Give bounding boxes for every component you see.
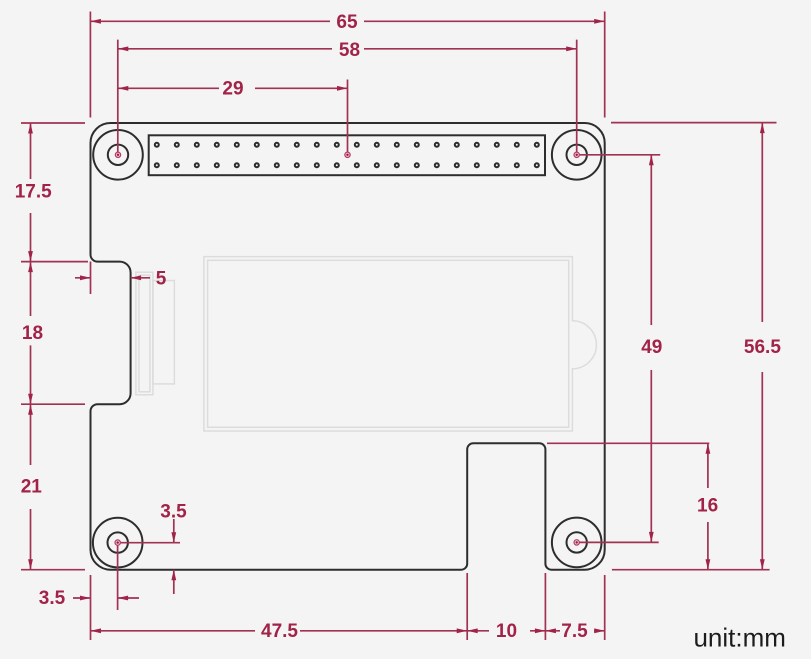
svg-text:3.5: 3.5 bbox=[160, 502, 187, 523]
svg-text:18: 18 bbox=[22, 323, 43, 344]
svg-text:29: 29 bbox=[222, 78, 243, 99]
svg-text:56.5: 56.5 bbox=[744, 337, 781, 358]
svg-text:3.5: 3.5 bbox=[39, 588, 66, 609]
svg-text:10: 10 bbox=[496, 621, 517, 642]
svg-text:7.5: 7.5 bbox=[561, 621, 588, 642]
svg-text:16: 16 bbox=[697, 496, 718, 517]
svg-text:21: 21 bbox=[21, 476, 43, 497]
svg-text:5: 5 bbox=[156, 269, 167, 290]
svg-text:65: 65 bbox=[336, 12, 358, 33]
svg-text:58: 58 bbox=[339, 40, 360, 61]
svg-text:17.5: 17.5 bbox=[15, 181, 52, 202]
svg-text:unit:mm: unit:mm bbox=[693, 623, 785, 653]
svg-text:47.5: 47.5 bbox=[261, 621, 298, 642]
svg-text:49: 49 bbox=[641, 337, 662, 358]
